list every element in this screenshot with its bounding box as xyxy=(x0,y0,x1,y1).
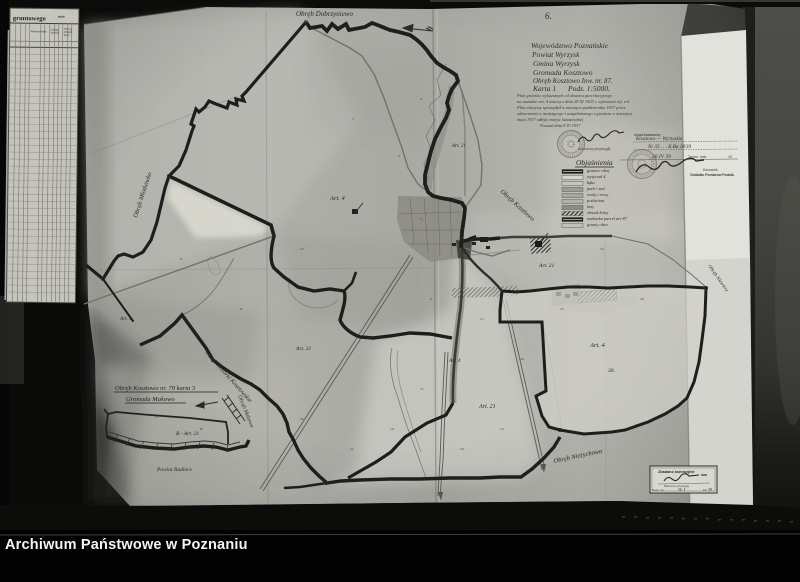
svg-text:Art. 4: Art. 4 xyxy=(119,317,132,322)
svg-text:19: 19 xyxy=(728,155,732,159)
svg-text:Obręb Kosztowo nr. 79 karta: Obręb Kosztowo nr. 79 karta 3 xyxy=(115,385,196,392)
svg-text:Gmina Wyrzysk: Gmina Wyrzysk xyxy=(533,59,580,68)
svg-text:Art. 4: Art. 4 xyxy=(448,359,461,364)
svg-text:na zasadzie art. 4 ustawy z dn: na zasadzie art. 4 ustawy z dnia 28 XI 1… xyxy=(517,99,630,104)
svg-text:9.: 9. xyxy=(180,257,183,261)
svg-text:dochód: dochód xyxy=(51,30,60,34)
svg-text:nadawka parcel art 87: nadawka parcel art 87 xyxy=(587,216,628,221)
svg-text:Powiat Wyrzysk: Powiat Wyrzysk xyxy=(531,50,580,59)
svg-text:16.: 16. xyxy=(460,447,465,451)
svg-text:wytyczał 4: wytyczał 4 xyxy=(587,174,606,179)
svg-text:lasy: lasy xyxy=(587,204,594,209)
svg-text:9.: 9. xyxy=(398,154,401,158)
svg-text:39: 39 xyxy=(708,487,712,492)
svg-text:Objaśnienia: Objaśnienia xyxy=(576,158,613,167)
svg-text:4.: 4. xyxy=(420,97,423,101)
svg-text:złote: złote xyxy=(58,15,65,19)
svg-text:B.: B. xyxy=(200,427,203,431)
svg-text:11.: 11. xyxy=(420,387,424,391)
svg-text:grunt.: grunt. xyxy=(64,34,70,37)
svg-text:grunty obce: grunty obce xyxy=(587,222,608,227)
svg-text:Art. 4: Art. 4 xyxy=(589,342,606,349)
svg-text:5.: 5. xyxy=(420,217,423,221)
svg-text:Art. 21: Art. 21 xyxy=(538,263,555,269)
svg-text:Obręb Dobrzyniewo: Obręb Dobrzyniewo xyxy=(296,10,353,18)
svg-text:Powiat Rudnice: Powiat Rudnice xyxy=(156,467,193,473)
svg-text:22.: 22. xyxy=(300,417,305,421)
svg-text:łąka: łąka xyxy=(587,180,595,185)
svg-text:obszał leśny: obszał leśny xyxy=(587,210,608,215)
svg-text:8.: 8. xyxy=(240,307,243,311)
svg-text:Zbadano komisyjnie: Zbadano komisyjnie xyxy=(658,470,695,474)
svg-text:17.: 17. xyxy=(480,317,485,321)
svg-text:21.: 21. xyxy=(350,447,355,451)
svg-text:Podz. 1:5000.: Podz. 1:5000. xyxy=(567,84,610,93)
svg-text:Pozn. dn.: Pozn. dn. xyxy=(652,488,665,492)
svg-text:Art. 4: Art. 4 xyxy=(329,195,346,202)
svg-text:Plan gruntów wykazanych od obs: Plan gruntów wykazanych od obszaru parce… xyxy=(516,93,613,98)
svg-text:Województwo Poznańskie: Województwo Poznańskie xyxy=(531,41,609,50)
svg-text:5.: 5. xyxy=(155,415,158,419)
svg-text:Kosztowo — Wyrzyskie: Kosztowo — Wyrzyskie xyxy=(635,137,683,142)
svg-text:18.: 18. xyxy=(640,297,645,301)
svg-text:6.: 6. xyxy=(430,297,433,301)
svg-text:12.: 12. xyxy=(300,247,305,251)
svg-text:podwórza: podwórza xyxy=(586,198,605,203)
svg-text:odtworzenie z istniejącego i u: odtworzenie z istniejącego i uzupełnione… xyxy=(517,111,633,116)
svg-text:wody i rowy: wody i rowy xyxy=(587,192,608,197)
svg-text:Karta 1: Karta 1 xyxy=(532,84,556,93)
svg-text:park i sad: park i sad xyxy=(586,186,605,191)
svg-text:6.: 6. xyxy=(545,11,552,21)
svg-text:Kierownik: Kierownik xyxy=(703,168,718,172)
svg-text:19.: 19. xyxy=(520,357,525,361)
svg-text:B - Art. 21: B - Art. 21 xyxy=(176,431,199,437)
svg-text:7.: 7. xyxy=(352,117,355,121)
svg-text:Gromada Kosztowo: Gromada Kosztowo xyxy=(533,68,593,77)
svg-text:granice okrę.: granice okrę. xyxy=(587,168,610,173)
svg-text:14.: 14. xyxy=(600,247,605,251)
svg-text:maja 1937 odbyto miejsc katast: maja 1937 odbyto miejsc katastralnej xyxy=(517,117,584,122)
svg-text:mierniczy przysięgły: mierniczy przysięgły xyxy=(578,146,611,151)
svg-text:30.: 30. xyxy=(607,368,615,374)
svg-text:19: 19 xyxy=(703,488,707,492)
svg-text:Poznań dnia 8 IV 1937: Poznań dnia 8 IV 1937 xyxy=(539,123,581,128)
svg-text:15.: 15. xyxy=(560,307,565,311)
svg-text:W. I: W. I xyxy=(678,487,686,492)
svg-text:13.: 13. xyxy=(500,427,505,431)
svg-text:Oddziału Pomiarów Podatk.: Oddziału Pomiarów Podatk. xyxy=(690,173,735,177)
svg-text:Gromada Makowo: Gromada Makowo xyxy=(126,396,175,403)
svg-text:Nr 33 . . . K.Ba 18/39: Nr 33 . . . K.Ba 18/39 xyxy=(647,145,692,150)
svg-text:Powierzchnia: Powierzchnia xyxy=(31,29,47,33)
svg-text:Art. 21: Art. 21 xyxy=(478,404,496,410)
svg-text:Art. 21: Art. 21 xyxy=(451,144,466,149)
svg-text:Art. 21: Art. 21 xyxy=(295,346,312,352)
svg-text:10.: 10. xyxy=(390,427,395,431)
svg-text:gruntowego: gruntowego xyxy=(13,15,46,22)
svg-text:Plan niniejszy sporządził w mi: Plan niniejszy sporządził w miesiącu paź… xyxy=(516,105,626,110)
svg-text:Mierniczy przysięgły: Mierniczy przysięgły xyxy=(664,484,690,488)
svg-text:26 IV 39: 26 IV 39 xyxy=(652,154,671,160)
